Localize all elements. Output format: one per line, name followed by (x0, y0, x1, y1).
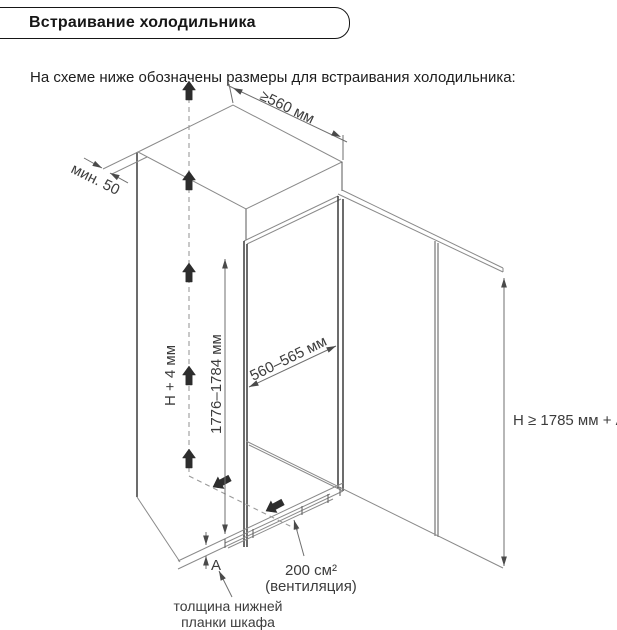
airflow-up-arrow-icon (183, 366, 196, 385)
airflow-up-arrow-icon (183, 81, 196, 100)
side-panel-top-edge (338, 190, 503, 272)
vent-caption-label: (вентиляция) (265, 578, 357, 595)
cabinet-outline (103, 105, 503, 569)
manual-page: Встраивание холодильника На схеме ниже о… (0, 0, 617, 630)
wall-gap-extension-lines (103, 152, 147, 174)
airflow-intake-arrow-icon (210, 472, 233, 492)
airflow-up-arrow-icon (183, 449, 196, 468)
dim-top-depth-line (227, 84, 347, 160)
plinth-note-line1: толщина нижней (174, 598, 283, 614)
airflow-up-arrow-icon (183, 171, 196, 190)
niche-left-inner-edge (244, 241, 247, 547)
airflow-intake-arrow-icon (263, 496, 286, 516)
niche-floor-edge (246, 441, 503, 568)
side-panel-seam (435, 241, 438, 537)
plinth-thickness-label: A (211, 557, 221, 574)
plinth-note-line2: планки шкафа (181, 614, 275, 630)
cabinet-left-bottom-edge (137, 497, 180, 562)
dim-niche-width-label: 560–565 мм (247, 333, 329, 385)
airflow-path (183, 81, 299, 530)
vent-area-label: 200 см² (285, 562, 337, 579)
airflow-up-arrow-icon (183, 263, 196, 282)
dim-total-height-label: H ≥ 1785 мм + A (513, 412, 617, 429)
dim-niche-height-label: 1776–1784 мм (208, 334, 225, 434)
dim-top-depth-label: ≥560 мм (257, 87, 317, 127)
built-in-installation-diagram: ≥560 мм мин. 50 H + 4 мм 1776–1784 мм 56… (0, 0, 617, 630)
niche-right-inner-edge (338, 196, 343, 491)
dim-height-plus-label: H + 4 мм (162, 345, 179, 406)
dimension-lines (84, 84, 507, 597)
